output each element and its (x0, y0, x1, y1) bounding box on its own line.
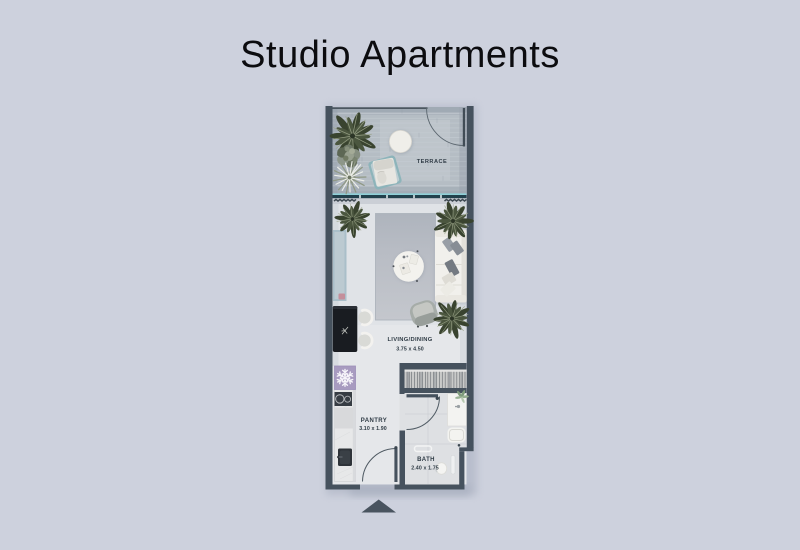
svg-text:BATH: BATH (417, 457, 435, 463)
svg-text:3.10 x 1.90: 3.10 x 1.90 (359, 426, 387, 432)
svg-text:LIVING/DINING: LIVING/DINING (387, 337, 432, 343)
svg-text:TERRACE: TERRACE (417, 159, 448, 165)
svg-text:2.40 x 1.75: 2.40 x 1.75 (411, 466, 439, 472)
svg-text:3.75 x 4.50: 3.75 x 4.50 (396, 346, 424, 352)
svg-text:PANTRY: PANTRY (361, 418, 387, 424)
